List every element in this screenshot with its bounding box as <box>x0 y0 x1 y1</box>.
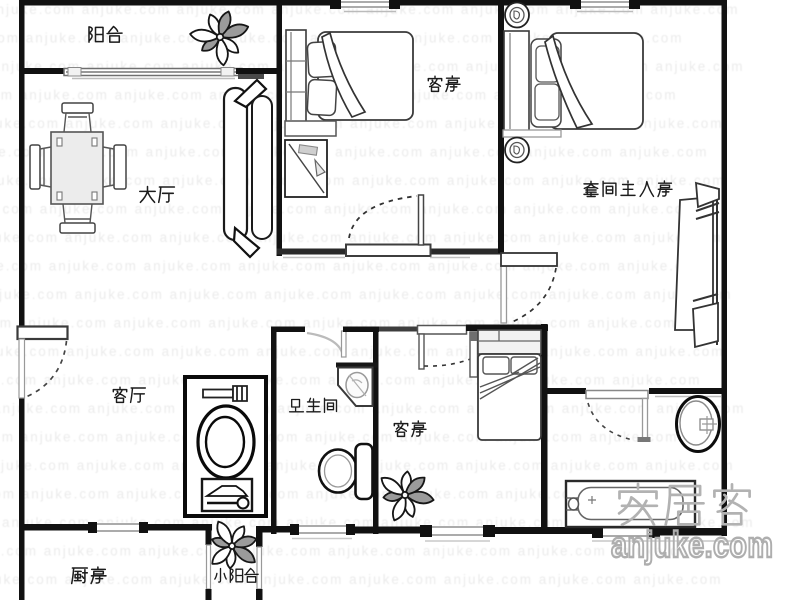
svg-text:anjuke.com anjuke.com anjuke: anjuke.com anjuke.com anjuke.com anjuke.… <box>0 430 679 445</box>
svg-text:anjuke.com anjuke.com anjuke: anjuke.com anjuke.com anjuke.com anjuke.… <box>0 230 723 245</box>
svg-text:anjuke.com anjuke.com anjuke: anjuke.com anjuke.com anjuke.com anjuke.… <box>0 344 725 359</box>
svg-text:anjuke.com anjuke.com anjuke: anjuke.com anjuke.com anjuke.com anjuke.… <box>0 544 702 559</box>
svg-text:anjuke.com anjuke.com anjuke: anjuke.com anjuke.com anjuke.com anjuke.… <box>0 572 723 587</box>
svg-text:anjuke.com: anjuke.com <box>611 524 773 565</box>
svg-text:anjuke.com anjuke.com anjuke: anjuke.com anjuke.com anjuke.com anjuke.… <box>0 287 733 302</box>
svg-text:anjuke.com anjuke.com anjuke: anjuke.com anjuke.com anjuke.com anjuke.… <box>0 202 698 217</box>
svg-text:anjuke.com anjuke.com anjuke: anjuke.com anjuke.com anjuke.com anjuke.… <box>0 259 707 274</box>
svg-text:anjuke.com anjuke.com anjuke: anjuke.com anjuke.com anjuke.com anjuke.… <box>0 145 709 160</box>
svg-text:anjuke.com anjuke.com anjuke: anjuke.com anjuke.com anjuke.com anjuke.… <box>0 316 677 331</box>
